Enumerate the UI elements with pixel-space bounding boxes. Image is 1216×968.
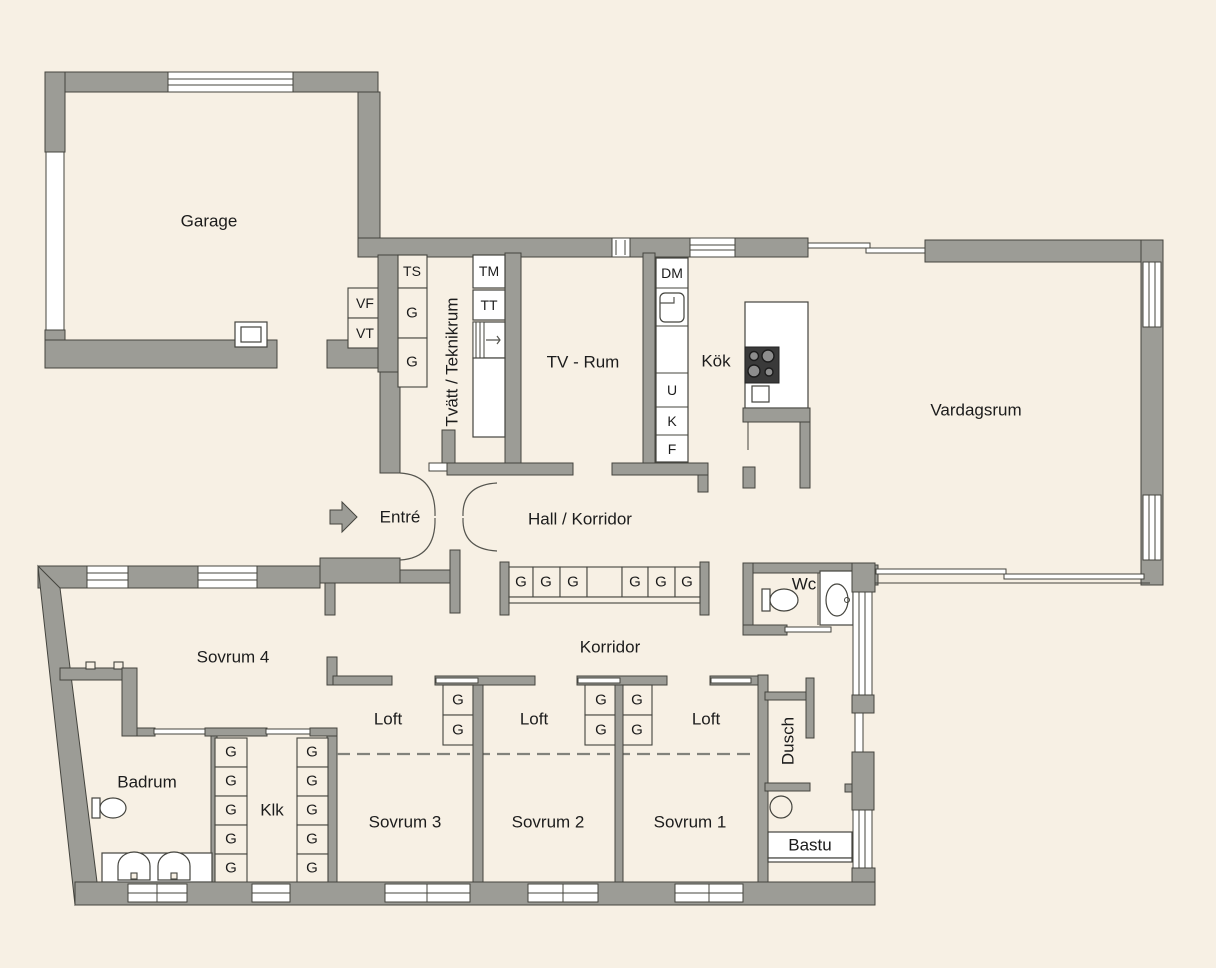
g-label: G xyxy=(595,722,607,739)
bathroom: Badrum xyxy=(60,662,337,882)
kitchen-room: DM U K F Kök xyxy=(612,258,810,492)
kitchen-sink xyxy=(660,293,684,322)
hall-label: Hall / Korridor xyxy=(528,510,632,529)
ts-label: TS xyxy=(403,263,421,279)
inner-double-door xyxy=(463,483,497,551)
south-window-klk xyxy=(252,884,290,902)
living-room-label: Vardagsrum xyxy=(930,401,1021,420)
kitchen-label: Kök xyxy=(701,352,731,371)
hall-wardrobes: G G G G G G xyxy=(509,567,700,603)
dm-label: DM xyxy=(661,265,683,281)
bedroom2-sliding-door xyxy=(578,678,620,683)
washing-machine xyxy=(473,322,505,358)
k-label: K xyxy=(667,413,677,429)
bedroom1-sliding-door xyxy=(711,678,751,683)
tm-cabinet: TM xyxy=(473,255,505,288)
garage-label: Garage xyxy=(181,212,238,231)
bathroom-sliding-door xyxy=(154,729,206,734)
kitchen-window xyxy=(690,238,735,257)
wing-window-2 xyxy=(198,566,257,588)
garage-top-window xyxy=(168,72,293,92)
east-window-2 xyxy=(853,810,872,868)
g-label: G xyxy=(681,574,693,591)
wc-sliding-door xyxy=(785,627,831,632)
klk-wardrobes-right: G G G G G xyxy=(297,738,328,883)
g-label: G xyxy=(567,574,579,591)
south-window-bathroom xyxy=(128,884,187,902)
bedrooms: Sovrum 3 Sovrum 2 Sovrum 1 xyxy=(369,675,768,882)
tm-label: TM xyxy=(479,263,499,279)
f-label: F xyxy=(668,441,677,457)
entrance-arrow xyxy=(330,502,357,532)
garage-room: VF VT Garage xyxy=(45,72,382,368)
bathroom-label: Badrum xyxy=(117,773,177,792)
stove xyxy=(745,347,779,383)
loft-row: G G G G G G Loft Loft Loft xyxy=(333,676,760,754)
laundry-wardrobe-1: G xyxy=(398,288,427,338)
north-glass-sliders xyxy=(808,243,928,253)
u-label: U xyxy=(667,382,677,398)
east-wall xyxy=(852,563,875,905)
south-window-bedroom2 xyxy=(528,884,598,902)
bedroom3-sliding-door xyxy=(436,678,478,683)
loft-wardrobe-pair: G G xyxy=(443,685,473,745)
g-label: G xyxy=(631,692,643,709)
laundry-label: Tvätt / Teknikrum xyxy=(443,297,462,426)
shower-stool xyxy=(770,796,792,818)
g-label: G xyxy=(225,802,237,819)
g-label: G xyxy=(631,722,643,739)
klk-label: Klk xyxy=(260,801,284,820)
living-room: Vardagsrum xyxy=(858,240,1163,585)
g-label: G xyxy=(306,831,318,848)
vf-cabinet: VF xyxy=(348,288,382,318)
g-label: G xyxy=(225,773,237,790)
klk-wardrobes-left: G G G G G xyxy=(215,738,247,883)
bedroom3-label: Sovrum 3 xyxy=(369,813,442,832)
vt-cabinet: VT xyxy=(348,318,382,348)
laundry-counter xyxy=(473,358,505,437)
bathroom-toilet xyxy=(92,798,126,818)
north-window-small xyxy=(612,238,630,257)
g-label: G xyxy=(655,574,667,591)
g-label: G xyxy=(225,744,237,761)
tv-room-label: TV - Rum xyxy=(547,353,620,372)
living-glass-south xyxy=(858,569,1150,583)
bathroom-sinks xyxy=(102,852,212,882)
living-window-right-top xyxy=(1143,262,1161,327)
slanted-west-wall xyxy=(38,566,97,905)
g-label: G xyxy=(452,722,464,739)
laundry-wardrobe-2: G xyxy=(398,338,427,387)
floor-plan-svg: VF VT Garage xyxy=(0,0,1216,968)
bedroom4-label: Sovrum 4 xyxy=(197,648,270,667)
wc-label: Wc xyxy=(792,575,817,594)
hall: Hall / Korridor G G G G G G xyxy=(500,510,709,616)
east-door xyxy=(855,713,863,752)
g-label: G xyxy=(306,773,318,790)
g-label: G xyxy=(629,574,641,591)
shower-label: Dusch xyxy=(779,717,798,765)
garage-door-opening xyxy=(46,152,64,330)
bedroom1-label: Sovrum 1 xyxy=(654,813,727,832)
g-label: G xyxy=(540,574,552,591)
sauna-room: Bastu xyxy=(768,832,852,862)
entry-room: Entré xyxy=(320,473,497,613)
loft2-label: Loft xyxy=(520,710,549,729)
corridor-label: Korridor xyxy=(580,638,641,657)
wing-window-1 xyxy=(87,566,128,588)
south-wall xyxy=(75,882,875,905)
klk-sliding-door xyxy=(266,729,311,734)
garage-floor-drain xyxy=(235,322,267,347)
loft3-label: Loft xyxy=(692,710,721,729)
laundry-room: TS G G TM TT Tvätt / Teknikrum xyxy=(378,253,521,473)
tv-room: TV - Rum xyxy=(429,253,655,475)
g-label: G xyxy=(452,692,464,709)
g-label: G xyxy=(306,744,318,761)
east-window-1 xyxy=(853,592,872,695)
south-window-bedroom1 xyxy=(675,884,743,902)
loft1-label: Loft xyxy=(374,710,403,729)
living-window-right-bottom xyxy=(1143,495,1161,560)
g-label: G xyxy=(225,831,237,848)
g-label: G xyxy=(306,860,318,877)
g-label: G xyxy=(225,860,237,877)
shower-room: Dusch xyxy=(765,678,852,818)
bedroom2-label: Sovrum 2 xyxy=(512,813,585,832)
wall-fixture xyxy=(86,662,95,669)
entry-label: Entré xyxy=(380,508,421,527)
g-label: G xyxy=(406,305,418,322)
g-label: G xyxy=(306,802,318,819)
vt-label: VT xyxy=(356,325,374,341)
g-label: G xyxy=(515,574,527,591)
sauna-label: Bastu xyxy=(788,836,831,855)
kitchen-cabinet-run xyxy=(656,258,688,462)
klk-closet: G G G G G G G G G G Klk xyxy=(215,738,328,883)
tt-cabinet: TT xyxy=(473,290,505,320)
tt-label: TT xyxy=(480,297,498,313)
wc-sink xyxy=(820,571,853,625)
floor-plan: VF VT Garage xyxy=(0,0,1216,968)
ts-cabinet: TS xyxy=(398,255,427,288)
vf-label: VF xyxy=(356,295,374,311)
south-window-bedroom3 xyxy=(385,884,470,902)
kitchen-island xyxy=(745,302,808,408)
g-label: G xyxy=(406,354,418,371)
g-label: G xyxy=(595,692,607,709)
